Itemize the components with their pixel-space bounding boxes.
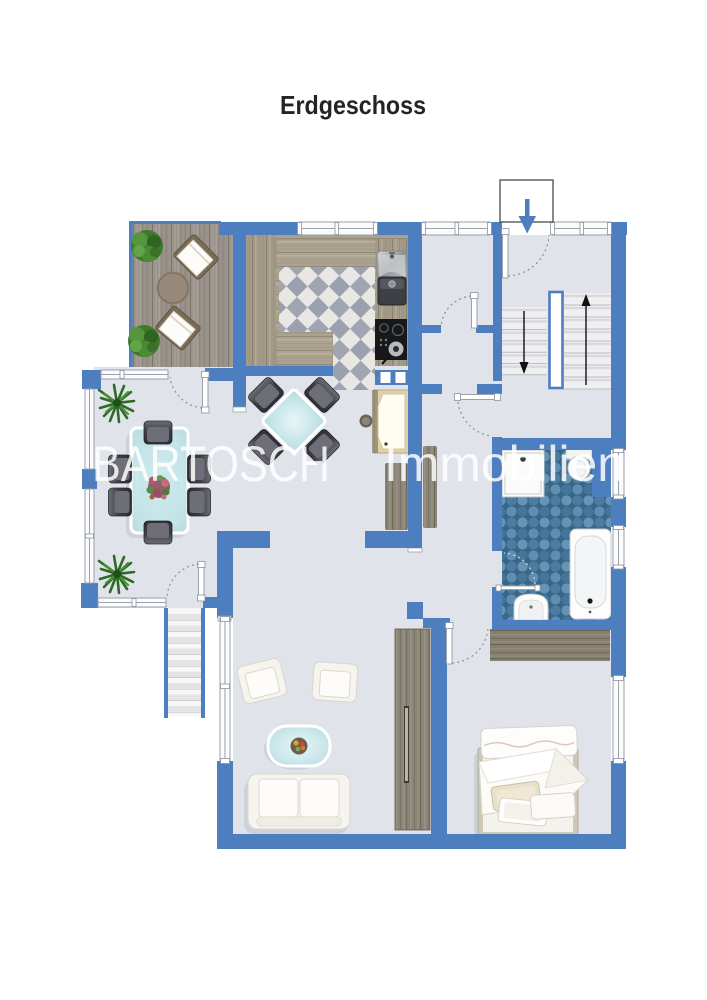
svg-text:BARTOSCH: BARTOSCH [92,436,330,492]
svg-text:Immobilien: Immobilien [384,436,625,492]
svg-text:Erdgeschoss: Erdgeschoss [280,90,426,120]
